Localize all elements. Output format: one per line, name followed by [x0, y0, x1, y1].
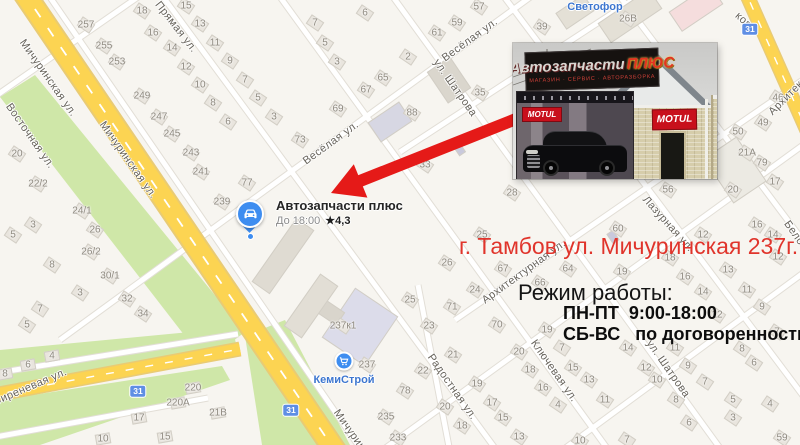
building-number: 15	[159, 432, 170, 443]
building-number: 249	[134, 91, 151, 102]
car-image	[523, 128, 629, 176]
building-number: 69	[332, 104, 343, 115]
building-number: 245	[164, 129, 181, 140]
poi-cart-icon[interactable]	[335, 352, 354, 371]
motul-billboard: MOTUL	[516, 91, 634, 179]
building-number: 11	[600, 395, 610, 406]
building-number: 3	[30, 220, 36, 231]
building-number: 8	[210, 98, 216, 109]
building-number: 220	[185, 383, 202, 394]
building-number: 11	[742, 285, 752, 296]
building-number: 10	[194, 80, 205, 91]
building-number: 18	[456, 421, 467, 432]
building-number: 16	[147, 28, 158, 39]
building-number: 78	[399, 386, 410, 397]
building-number: 233	[390, 433, 407, 444]
building-number: 10	[97, 434, 108, 445]
building-number: 26	[441, 258, 452, 269]
building-number: 24	[469, 285, 480, 296]
motul-logo: MOTUL	[522, 107, 562, 122]
building-number: 28	[506, 188, 517, 199]
building-number: 5	[255, 93, 261, 104]
building-number: 26/2	[81, 247, 100, 258]
pin-hours: До 18:00	[276, 215, 320, 227]
building-number: 33	[419, 160, 430, 171]
building-number: 49	[757, 118, 768, 129]
building-number: 6	[686, 418, 692, 429]
building-number: 7	[37, 304, 43, 315]
building-number: 14	[697, 287, 708, 298]
street-label: Архитектурная ул.	[766, 38, 800, 117]
location-pin[interactable]	[236, 200, 264, 228]
building-number: 23	[423, 321, 434, 332]
building-number: 243	[183, 148, 200, 159]
building-number: 17	[486, 398, 497, 409]
building-number: 17	[769, 177, 780, 188]
building-number: 6	[25, 360, 31, 371]
building-number: 6	[225, 117, 231, 128]
map-canvas[interactable]: 2572552532492472452432412397722/22024/11…	[0, 0, 800, 445]
building-number: 16	[751, 220, 762, 231]
building-number: 10	[651, 375, 662, 386]
building-number: 59	[776, 433, 787, 444]
car-icon	[242, 206, 259, 223]
building-number: 13	[722, 265, 733, 276]
building-number: 16	[537, 383, 548, 394]
building-number: 235	[378, 412, 395, 423]
pin-rating: 4,3	[335, 215, 350, 227]
building-number: 20	[727, 185, 738, 196]
building-number: 7	[702, 377, 708, 388]
location-pin-anchor-dot	[247, 233, 254, 240]
building-number: 18	[136, 6, 147, 17]
building-number: 57	[473, 2, 484, 13]
building-number: 35	[474, 88, 485, 99]
building-number: 64	[562, 264, 573, 275]
building-number: 9	[759, 302, 765, 313]
building-number: 3	[77, 288, 83, 299]
poi-label[interactable]: Светофор	[567, 1, 622, 13]
building-number: 5	[10, 230, 16, 241]
building-number: 26	[89, 225, 100, 236]
storefront-sign: АвтозапчастиПЛЮС МАГАЗИН · СЕРВИС · АВТО…	[524, 48, 659, 92]
route-badge: 31	[130, 386, 145, 397]
building-number: 61	[431, 28, 442, 39]
building-number: 4	[767, 399, 773, 410]
schedule-weekdays: ПН-ПТ 9:00-18:00	[563, 303, 717, 324]
storefront-photo: АвтозапчастиПЛЮС МАГАЗИН · СЕРВИС · АВТО…	[513, 43, 717, 179]
building-number: 19	[541, 325, 552, 336]
billboard-header-strip	[517, 92, 633, 103]
building-number: 7	[312, 18, 318, 29]
address-text: г. Тамбов ул. Мичуринская 237г.	[459, 233, 798, 260]
building-number: 8	[673, 395, 679, 406]
building-number: 67	[497, 264, 508, 275]
building-number: 3	[730, 413, 736, 424]
building-number: 8	[49, 260, 55, 271]
building-number: 71	[446, 302, 457, 313]
pin-title[interactable]: Автозапчасти плюс	[276, 198, 403, 213]
building	[669, 0, 724, 32]
building-number: 4	[555, 400, 561, 411]
building-number: 3	[271, 112, 277, 123]
building-number: 8	[2, 369, 8, 380]
building-number: 17	[133, 413, 144, 424]
building-number: 12	[640, 363, 651, 374]
building-number: 5	[730, 395, 736, 406]
building-number: 70	[491, 320, 502, 331]
building-number: 30/1	[100, 271, 119, 282]
route-badge: 31	[742, 24, 757, 35]
building-number: 88	[406, 108, 417, 119]
building-number: 2	[405, 52, 411, 63]
building-number: 21А	[738, 148, 756, 159]
building-number: 4	[49, 351, 55, 362]
building-number: 39	[536, 22, 547, 33]
building-number: 59	[451, 18, 462, 29]
building-number: 50	[732, 127, 743, 138]
sign-title: АвтозапчастиПЛЮС	[513, 55, 674, 76]
building-number: 25	[404, 295, 415, 306]
building-number: 13	[194, 19, 205, 30]
schedule-weekend: СБ-ВС по договоренности	[563, 324, 800, 345]
building-number: 22	[417, 366, 428, 377]
building-number: 13	[513, 432, 524, 443]
building-number: 12	[180, 62, 191, 73]
building-number: 6	[362, 8, 368, 19]
building-number: 7	[624, 435, 630, 445]
building-number: 32	[121, 294, 132, 305]
star-icon: ★	[325, 215, 335, 227]
building	[252, 218, 315, 295]
building-number: 19	[616, 267, 627, 278]
route-badge: 31	[283, 405, 298, 416]
building-number: 18	[524, 365, 535, 376]
building-number: 255	[96, 41, 113, 52]
building-number: 220А	[166, 398, 189, 409]
building-number: 24/1	[72, 206, 91, 217]
motul-wall-sign: MOTUL	[652, 109, 697, 131]
building-number: 20	[513, 347, 524, 358]
building-number: 20	[11, 149, 22, 160]
building-number: 15	[180, 1, 191, 12]
building-number: 15	[567, 363, 578, 374]
brick-wall-right	[711, 95, 717, 179]
building-number: 21В	[209, 408, 227, 419]
building-number: 77	[241, 178, 252, 189]
building-number: 239	[214, 197, 231, 208]
building-number: 67	[360, 85, 371, 96]
building-number: 14	[166, 43, 177, 54]
building-number: 65	[377, 73, 388, 84]
poi-label[interactable]: КемиСтрой	[313, 374, 374, 386]
building-number: 56	[662, 185, 673, 196]
building-number: 13	[583, 375, 594, 386]
building-number: 19	[471, 379, 482, 390]
building-number: 9	[685, 361, 691, 372]
building-number: 11	[210, 38, 220, 49]
building-number: 7	[242, 75, 248, 86]
street-label: Мичуринская ул.	[17, 37, 79, 119]
building-number: 253	[109, 57, 126, 68]
shop-window	[659, 131, 686, 179]
building-number: 237	[359, 360, 376, 371]
building-number: 6	[751, 358, 757, 369]
building-number: 20	[439, 402, 450, 413]
building-number: 241	[193, 167, 210, 178]
building-number: 15	[497, 413, 508, 424]
street-label: Весёлая ул.	[301, 119, 361, 167]
building-number: 34	[137, 309, 148, 320]
building-number: 79	[756, 158, 767, 169]
building-number: 22/2	[28, 179, 47, 190]
building-number: 21	[447, 350, 458, 361]
building-number: 247	[151, 112, 168, 123]
pin-subtitle: До 18:00★4,3	[276, 214, 350, 227]
street-label: Мичуринская ул.	[97, 119, 159, 201]
street-label: Восточная ул.	[3, 101, 57, 171]
building-number: 257	[78, 20, 95, 31]
building	[454, 144, 466, 157]
building-number: 5	[24, 320, 30, 331]
downpipe	[705, 99, 708, 179]
building-number: 3	[334, 57, 340, 68]
building-number: 8	[739, 344, 745, 355]
building-number: 16	[679, 272, 690, 283]
building-number: 73	[294, 135, 305, 146]
building-number: 10	[574, 436, 585, 445]
building-number: 237к1	[330, 321, 357, 332]
building-number: 26В	[619, 14, 637, 25]
building-number: 9	[227, 56, 233, 67]
building-number: 5	[322, 38, 328, 49]
